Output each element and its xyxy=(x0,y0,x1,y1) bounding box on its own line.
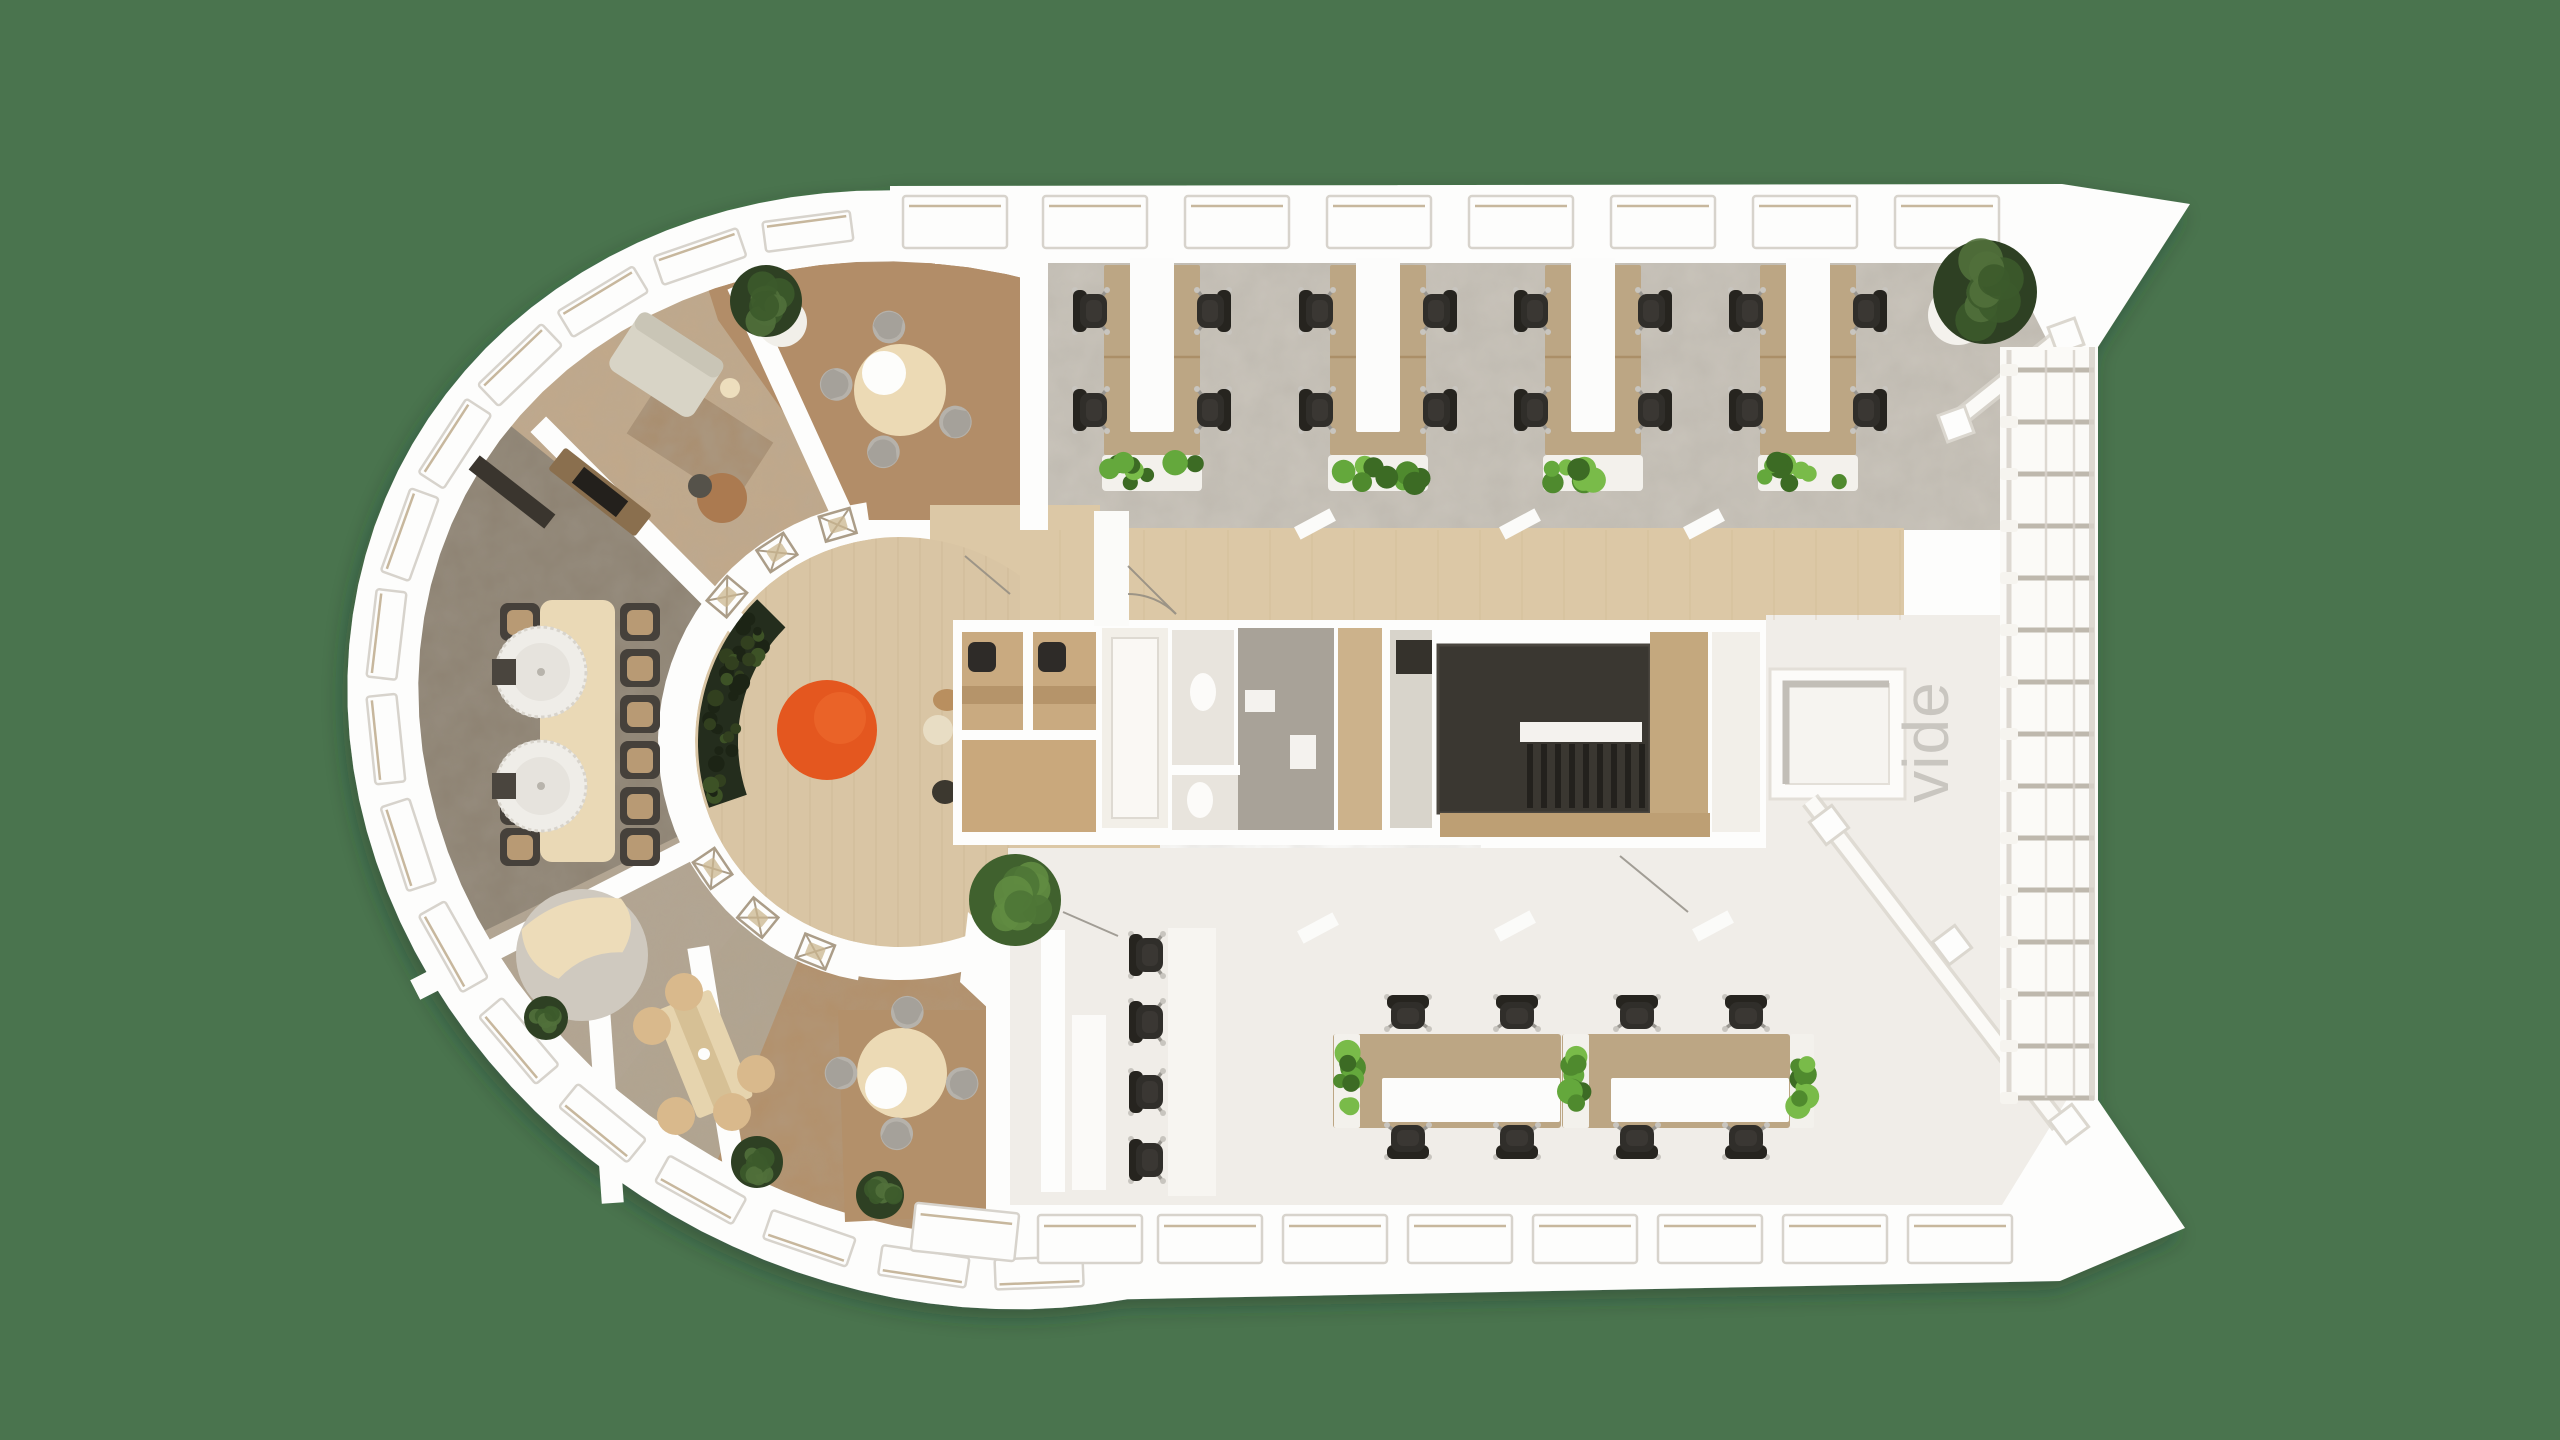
svg-text:vide: vide xyxy=(1890,681,1962,802)
